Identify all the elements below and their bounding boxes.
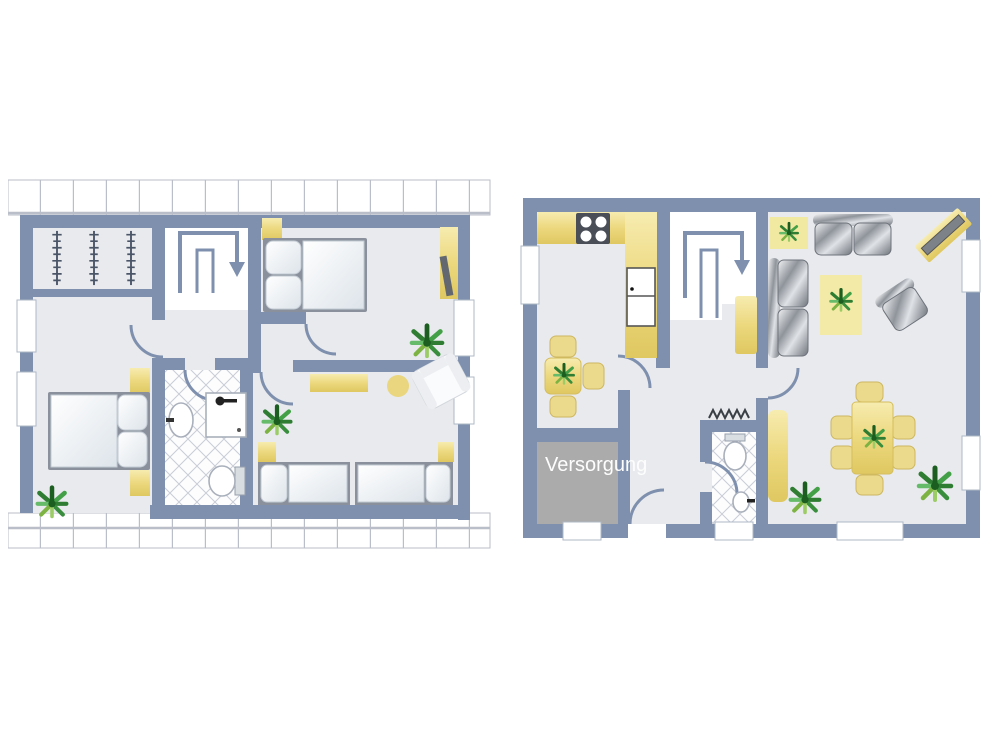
chair-icon bbox=[550, 396, 576, 417]
pillow bbox=[118, 395, 147, 430]
window-icon bbox=[17, 300, 36, 352]
chair-icon bbox=[856, 475, 883, 495]
chair-icon bbox=[831, 416, 854, 439]
window-icon bbox=[454, 300, 474, 356]
faucet-icon bbox=[747, 499, 755, 503]
chair-icon bbox=[856, 382, 883, 402]
pillow bbox=[266, 276, 301, 309]
stool-icon bbox=[387, 375, 409, 397]
chair-icon bbox=[550, 336, 576, 357]
utility-room-label: Versorgung bbox=[545, 454, 647, 476]
toilet-icon bbox=[724, 442, 746, 470]
mattress bbox=[51, 395, 117, 467]
mattress bbox=[289, 465, 347, 502]
window-icon bbox=[962, 240, 980, 292]
entrance-opening bbox=[628, 524, 666, 538]
window-icon bbox=[17, 372, 36, 426]
window-icon bbox=[563, 522, 601, 540]
nightstand-icon bbox=[438, 442, 454, 462]
window-icon bbox=[715, 522, 753, 540]
window-icon bbox=[837, 522, 903, 540]
toilet-tank bbox=[725, 434, 745, 441]
pillow bbox=[261, 465, 287, 502]
shower-head-icon bbox=[216, 397, 225, 406]
faucet-icon bbox=[166, 418, 174, 422]
upper-floor-plan bbox=[8, 178, 492, 560]
chair-icon bbox=[892, 446, 915, 469]
nightstand-icon bbox=[258, 442, 276, 462]
pillow bbox=[266, 241, 301, 274]
ground-floor-plan: Versorgung bbox=[515, 190, 985, 548]
sideboard-icon bbox=[310, 374, 368, 392]
mattress bbox=[358, 465, 424, 502]
nightstand-icon bbox=[130, 368, 150, 394]
mattress bbox=[303, 241, 364, 309]
floorplan-canvas: Versorgung bbox=[0, 0, 1000, 750]
toilet-icon bbox=[209, 466, 235, 496]
wardrobe-icon bbox=[735, 296, 757, 354]
chair-icon bbox=[892, 416, 915, 439]
toilet-tank bbox=[235, 467, 245, 495]
nightstand-icon bbox=[262, 218, 282, 240]
window-icon bbox=[962, 436, 980, 490]
nightstand-icon bbox=[130, 470, 150, 496]
refrigerator-icon bbox=[627, 268, 655, 326]
roof-hatch-icon bbox=[8, 180, 490, 215]
pillow bbox=[426, 465, 450, 502]
chair-icon bbox=[831, 446, 854, 469]
window-icon bbox=[521, 246, 539, 304]
pillow bbox=[118, 432, 147, 467]
chair-icon bbox=[583, 363, 604, 389]
sink-icon bbox=[733, 492, 749, 512]
cabinet-icon bbox=[768, 410, 788, 502]
